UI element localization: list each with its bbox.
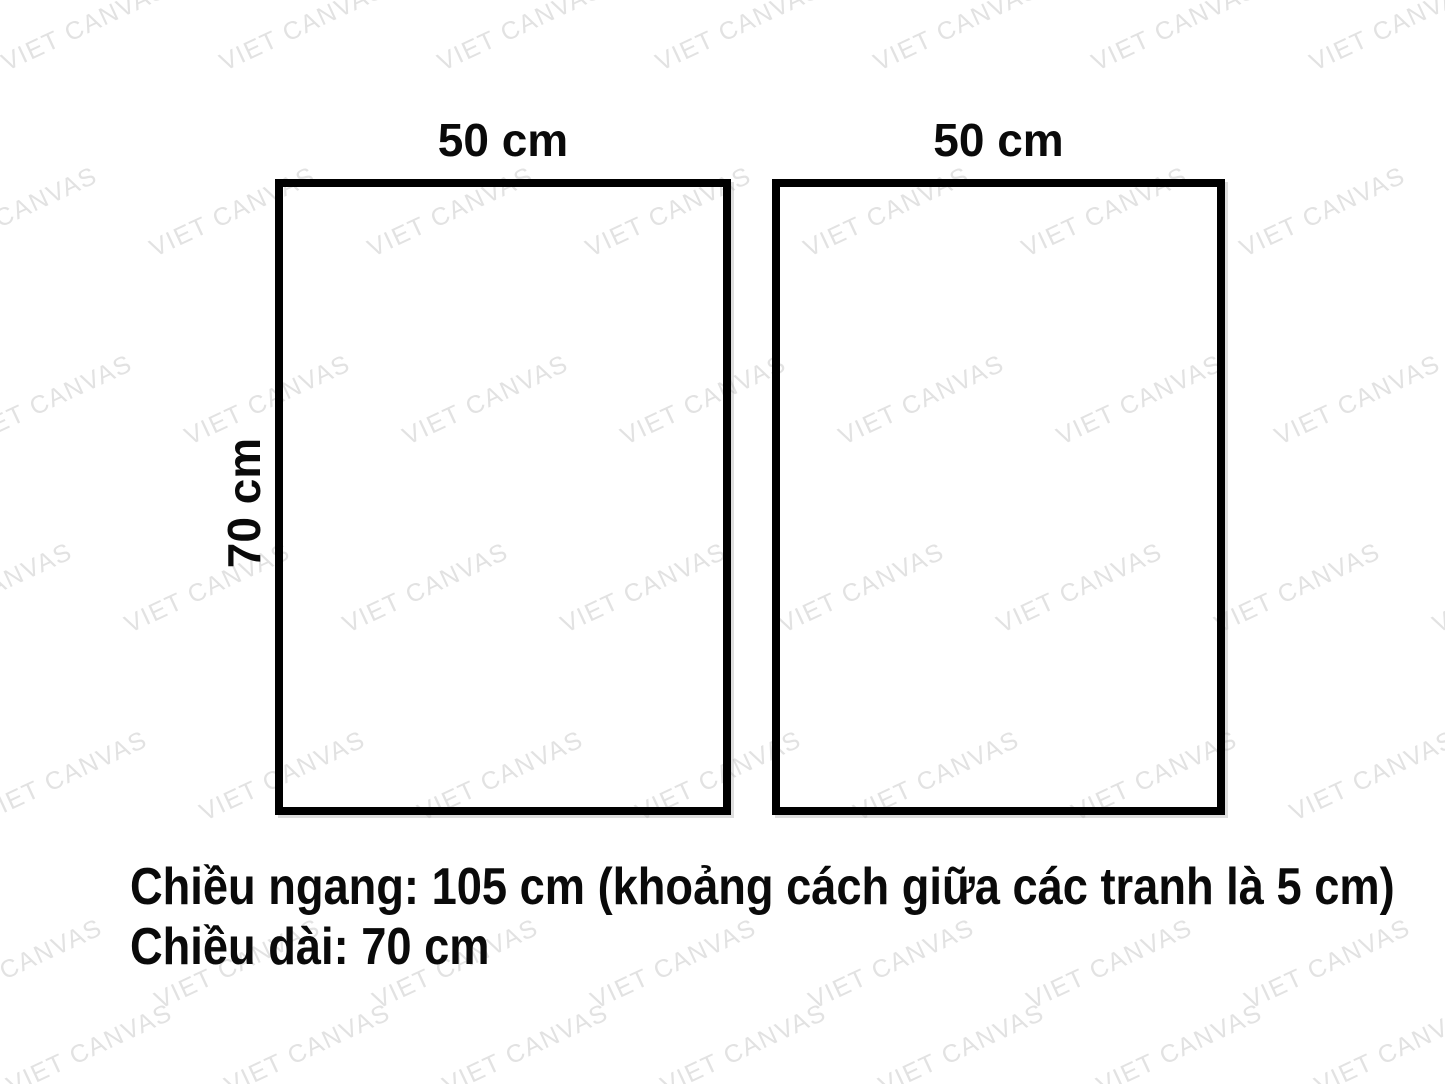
watermark-text: VIET CANVAS	[0, 913, 107, 1015]
watermark-text: VIET CANVAS	[1092, 998, 1267, 1084]
watermark-text: VIET CANVAS	[0, 537, 77, 639]
watermark-text: VIET CANVAS	[651, 0, 826, 78]
watermark-text: VIET CANVAS	[0, 349, 137, 451]
watermark-text: VIET CANVAS	[1210, 537, 1385, 639]
dimension-diagram: VIET CANVASVIET CANVASVIET CANVASVIET CA…	[0, 0, 1445, 1084]
watermark-text: VIET CANVAS	[215, 0, 390, 78]
caption-line-vertical: Chiều dài: 70 cm	[130, 917, 1395, 977]
watermark-text: VIET CANVAS	[869, 0, 1044, 78]
watermark-text: VIET CANVAS	[220, 998, 395, 1084]
watermark-text: VIET CANVAS	[1270, 349, 1445, 451]
frame-left-width-label: 50 cm	[275, 117, 731, 163]
watermark-text: VIET CANVAS	[0, 161, 102, 263]
watermark-text: VIET CANVAS	[1087, 0, 1262, 78]
canvas-frame-right	[772, 179, 1225, 815]
watermark-text: VIET CANVAS	[1285, 725, 1445, 827]
caption: Chiều ngang: 105 cm (khoảng cách giữa cá…	[130, 857, 1395, 977]
watermark-text: VIET CANVAS	[0, 0, 172, 78]
watermark-text: VIET CANVAS	[2, 998, 177, 1084]
canvas-frame-left	[275, 179, 731, 815]
watermark-text: VIET CANVAS	[1305, 0, 1445, 78]
watermark-text: VIET CANVAS	[0, 725, 152, 827]
caption-line-horizontal: Chiều ngang: 105 cm (khoảng cách giữa cá…	[130, 857, 1395, 917]
watermark-text: VIET CANVAS	[1235, 161, 1410, 263]
watermark-text: VIET CANVAS	[1428, 537, 1445, 639]
watermark-text: VIET CANVAS	[874, 998, 1049, 1084]
watermark-text: VIET CANVAS	[438, 998, 613, 1084]
frame-right-width-label: 50 cm	[772, 117, 1225, 163]
watermark-text: VIET CANVAS	[1310, 998, 1445, 1084]
watermark-text: VIET CANVAS	[656, 998, 831, 1084]
frame-height-label: 70 cm	[221, 438, 267, 568]
watermark-text: VIET CANVAS	[433, 0, 608, 78]
